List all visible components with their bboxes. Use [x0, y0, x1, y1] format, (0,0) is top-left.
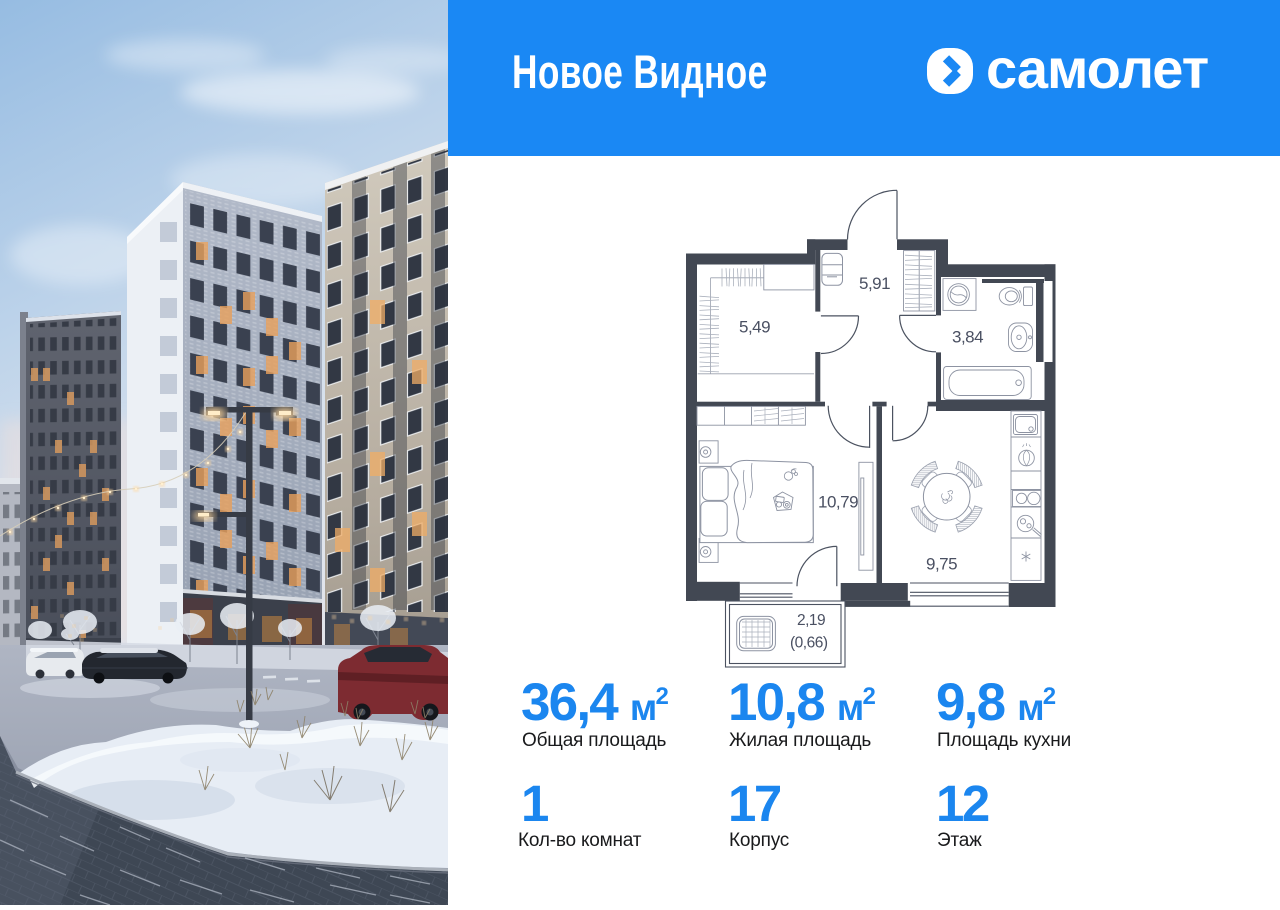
svg-text:(0,66): (0,66) [790, 635, 828, 652]
svg-text:5,49: 5,49 [739, 318, 770, 337]
svg-text:10,79: 10,79 [818, 493, 858, 512]
svg-text:2,19: 2,19 [797, 612, 825, 629]
svg-text:5,91: 5,91 [859, 274, 890, 293]
svg-text:3,84: 3,84 [952, 328, 983, 347]
svg-text:9,75: 9,75 [926, 555, 957, 574]
